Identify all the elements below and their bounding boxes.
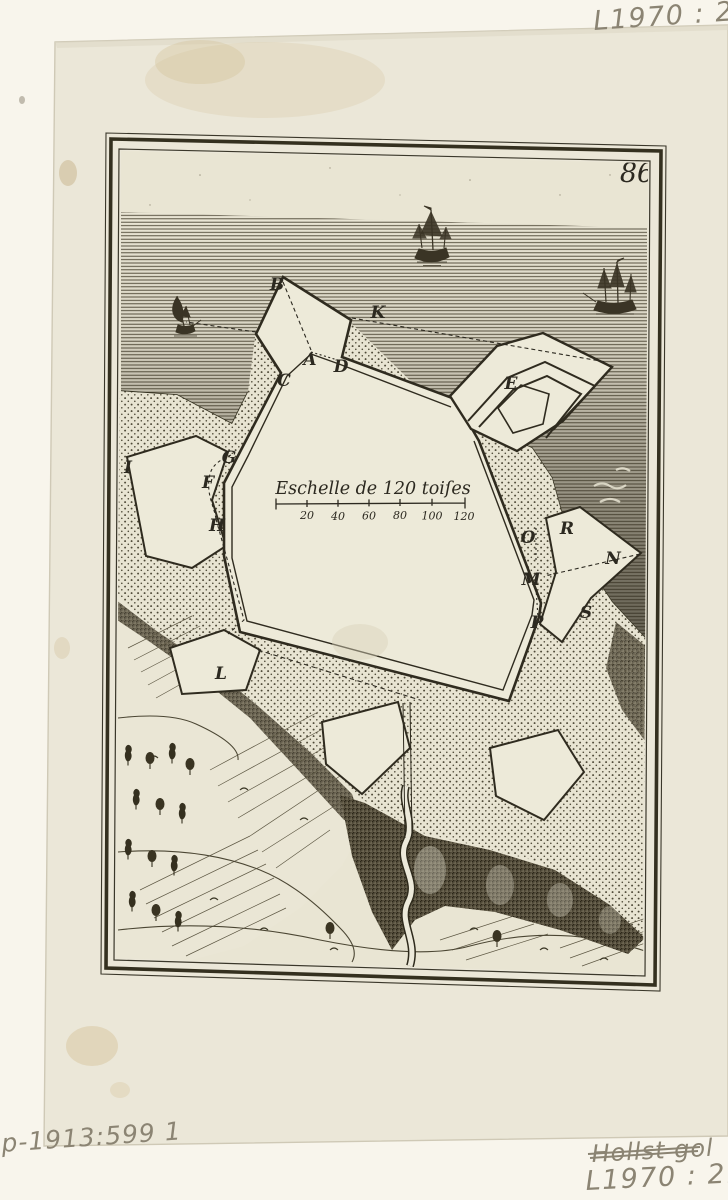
scale-tick-80: 80 (393, 509, 407, 522)
scanned-print: . (0, 0, 728, 1200)
fort-label-b: B (269, 275, 284, 295)
scale-tick-40: 40 (330, 510, 345, 523)
fort-label-g: G (222, 448, 237, 468)
scale-tick-120: 120 (454, 510, 475, 523)
fort-label-f: F (201, 473, 216, 493)
fort-label-e: E (504, 374, 519, 394)
fort-label-s: S (580, 603, 592, 623)
fort-label-r: R (559, 519, 574, 539)
fort-label-m: M (521, 570, 542, 590)
fort-label-n: N (604, 549, 622, 569)
fort-label-o: O (521, 528, 536, 548)
engraving: . (0, 0, 728, 1200)
fort-label-i: I (123, 458, 133, 478)
fort-label-l: L (214, 664, 227, 684)
fort-label-h: H (208, 516, 226, 536)
print-image: . (100, 130, 660, 990)
scale-tick-60: 60 (362, 510, 376, 523)
scale-tick-20: 20 (299, 509, 314, 522)
scale-title: Eschelle de 120 toiſes (274, 479, 470, 499)
scale-tick-100: 100 (422, 510, 443, 523)
fort-label-c: C (277, 371, 291, 391)
fort-label-d: D (333, 357, 349, 377)
fort-label-k: K (370, 303, 387, 323)
fort-label-a: A (301, 350, 316, 370)
fort-label-p: P (530, 613, 545, 633)
